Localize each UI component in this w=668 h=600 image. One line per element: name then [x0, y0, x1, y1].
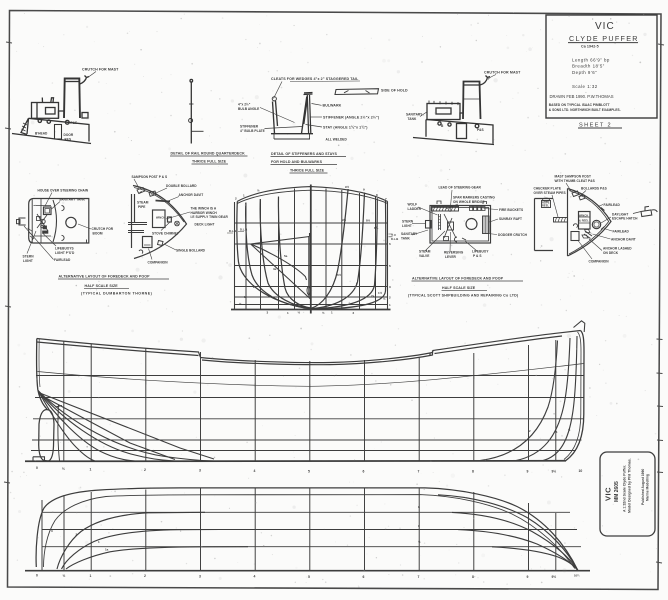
svg-text:WINCH: WINCH	[156, 216, 165, 220]
svg-text:COMPANION: COMPANION	[589, 260, 610, 264]
svg-text:FAIRLEAD: FAIRLEAD	[613, 230, 630, 234]
svg-text:DODGER CRUTCH: DODGER CRUTCH	[498, 233, 528, 237]
svg-text:& REEL: & REEL	[579, 219, 589, 223]
svg-text:& SONS LTD. NORTHWICH BUILT EX: & SONS LTD. NORTHWICH BUILT EXAMPLES.	[549, 108, 621, 112]
svg-text:1: 1	[90, 574, 92, 578]
svg-text:D.L.B: D.L.B	[391, 237, 398, 241]
svg-text:FAIRLEAD: FAIRLEAD	[604, 203, 621, 207]
svg-text:Breadth 18'5”: Breadth 18'5”	[572, 64, 605, 69]
svg-text:LIGHT: LIGHT	[402, 224, 412, 228]
svg-text:HALF SCALE SIZE: HALF SCALE SIZE	[85, 284, 119, 288]
svg-text:SIDE OF HOLD: SIDE OF HOLD	[381, 89, 408, 93]
svg-text:5: 5	[308, 575, 310, 579]
svg-text:SINGLE BOLLARD: SINGLE BOLLARD	[176, 249, 206, 253]
svg-text:8: 8	[472, 575, 474, 579]
svg-text:STAY (ANGLE 1¾”x 1¾”): STAY (ANGLE 1¾”x 1¾”)	[323, 126, 368, 130]
svg-text:THRICE FULL SIZE: THRICE FULL SIZE	[192, 160, 227, 164]
svg-text:7: 7	[418, 470, 420, 474]
svg-text:½: ½	[62, 467, 65, 471]
svg-text:3: 3	[199, 574, 201, 578]
svg-text:0: 0	[36, 574, 38, 578]
svg-text:PIPE: PIPE	[138, 205, 145, 209]
svg-text:TANK: TANK	[401, 236, 410, 240]
svg-text:ALTERNATIVE LAYOUT OF FOREDECK: ALTERNATIVE LAYOUT OF FOREDECK AND POOP	[59, 275, 151, 279]
svg-text:P&S: P&S	[71, 121, 78, 125]
svg-text:6: 6	[363, 470, 365, 474]
svg-text:SANITARY TANK: SANITARY TANK	[59, 198, 86, 202]
svg-text:Model Designed by Phil Thomas.: Model Designed by Phil Thomas.	[628, 458, 632, 513]
svg-text:DOOR: DOOR	[64, 133, 74, 137]
svg-text:ANCHOR DAVIT: ANCHOR DAVIT	[179, 193, 204, 197]
svg-text:DETAIL OF RAIL ROUND QUARTERDE: DETAIL OF RAIL ROUND QUARTERDECK	[171, 152, 246, 156]
svg-text:D.L.B: D.L.B	[240, 228, 247, 232]
svg-text:1: 1	[90, 468, 92, 472]
svg-text:BASED ON TYPICAL ISAAC PIMBLOT: BASED ON TYPICAL ISAAC PIMBLOTT	[549, 103, 610, 107]
svg-text:4: 4	[254, 575, 256, 579]
svg-text:LIGHT: LIGHT	[23, 259, 33, 263]
svg-text:FAIRLEAD: FAIRLEAD	[54, 258, 71, 262]
svg-text:STOVE CHIMNEY: STOVE CHIMNEY	[152, 232, 180, 236]
svg-text:LEAD OF STEERING GEAR: LEAD OF STEERING GEAR	[439, 186, 482, 190]
svg-text:9½: 9½	[345, 185, 350, 189]
svg-text:7: 7	[418, 575, 420, 579]
svg-text:A 1:32nd Scale Clyde Puffer.: A 1:32nd Scale Clyde Puffer.	[623, 465, 627, 512]
svg-text:DETAIL OF STIFFENERS AND STAYS: DETAIL OF STIFFENERS AND STAYS	[271, 152, 338, 156]
svg-text:DOUBLE BOLLARD: DOUBLE BOLLARD	[166, 184, 197, 188]
svg-text:CRUTCH FOR MAST: CRUTCH FOR MAST	[82, 68, 119, 72]
svg-text:1a: 1a	[105, 547, 109, 551]
svg-text:ON DECK: ON DECK	[603, 251, 619, 255]
svg-text:Depth 9'6”: Depth 9'6”	[572, 70, 597, 75]
svg-text:6: 6	[363, 575, 365, 579]
svg-text:B'HEAD: B'HEAD	[35, 132, 48, 136]
svg-text:VIC: VIC	[604, 487, 613, 501]
svg-text:THRICE FULL SIZE: THRICE FULL SIZE	[290, 169, 325, 173]
svg-text:BULWARK: BULWARK	[323, 104, 342, 108]
svg-text:WITH THUMB CLEAT P&S: WITH THUMB CLEAT P&S	[555, 179, 595, 183]
svg-text:P & S: P & S	[473, 254, 482, 258]
svg-text:2: 2	[144, 468, 146, 472]
svg-text:COMPANION: COMPANION	[148, 261, 169, 265]
svg-text:OVER STEAM PIPES: OVER STEAM PIPES	[534, 191, 566, 195]
svg-text:8½: 8½	[366, 219, 371, 223]
svg-text:REEL: REEL	[542, 203, 549, 207]
svg-text:(TYPICAL DUMBARTON THORNE): (TYPICAL DUMBARTON THORNE)	[81, 292, 153, 296]
svg-text:I.E SUPPLY TWIN GEAR: I.E SUPPLY TWIN GEAR	[191, 215, 229, 219]
svg-text:CRUTCH FOR MAST: CRUTCH FOR MAST	[484, 71, 521, 75]
svg-text:Length 66'9” bp: Length 66'9” bp	[572, 58, 610, 63]
svg-text:ANCHOR DAVIT: ANCHOR DAVIT	[611, 238, 636, 242]
svg-text:HOUSE OVER STEERING CHAIN: HOUSE OVER STEERING CHAIN	[38, 189, 89, 193]
svg-text:8¾: 8¾	[374, 226, 379, 230]
svg-text:(TYPICAL SCOTT SHIPBUILDING AN: (TYPICAL SCOTT SHIPBUILDING AND REPAIRIN…	[408, 294, 519, 298]
svg-text:BOLLARDS P&S: BOLLARDS P&S	[581, 187, 607, 191]
svg-text:3a: 3a	[273, 267, 277, 271]
svg-text:FOR HOLD AND BULWARKS: FOR HOLD AND BULWARKS	[271, 160, 323, 164]
svg-text:2: 2	[144, 574, 146, 578]
svg-text:Published August 1990: Published August 1990	[641, 469, 645, 505]
svg-text:ALTERNATIVE LAYOUT OF FOREDECK: ALTERNATIVE LAYOUT OF FOREDECK AND POOP	[412, 277, 504, 281]
svg-text:ESCAPE HATCH: ESCAPE HATCH	[612, 217, 638, 221]
svg-text:FIRE BUCKETS: FIRE BUCKETS	[499, 208, 523, 212]
svg-text:5: 5	[308, 470, 310, 474]
svg-text:VALVE: VALVE	[419, 254, 429, 258]
svg-text:4” BULB PLATE: 4” BULB PLATE	[240, 129, 265, 133]
svg-text:BULB ANGLE: BULB ANGLE	[238, 107, 259, 111]
svg-text:SAMPSON POST P & S: SAMPSON POST P & S	[132, 175, 168, 179]
svg-text:MM 2605: MM 2605	[614, 481, 620, 502]
svg-text:D.L.B: D.L.B	[229, 229, 236, 233]
svg-text:b: b	[418, 505, 420, 509]
svg-text:9½: 9½	[342, 218, 347, 222]
svg-text:ALL WELDED: ALL WELDED	[326, 138, 348, 142]
svg-text:STIFFENER (ANGLE 2½”x 2½”): STIFFENER (ANGLE 2½”x 2½”)	[323, 116, 380, 120]
svg-text:VIC: VIC	[595, 21, 615, 32]
svg-text:½: ½	[63, 574, 66, 578]
svg-text:9½: 9½	[552, 470, 557, 474]
svg-text:10: 10	[579, 469, 583, 473]
svg-text:6½: 6½	[337, 273, 342, 277]
svg-text:Ca 1942-5: Ca 1942-5	[581, 45, 599, 49]
svg-text:7a: 7a	[371, 294, 375, 298]
svg-text:STERN: STERN	[23, 255, 35, 259]
svg-text:DRAWN FEB 1990. P.W.THOMAS: DRAWN FEB 1990. P.W.THOMAS	[550, 94, 614, 99]
svg-text:3: 3	[199, 469, 201, 473]
svg-text:HALF SCALE SIZE: HALF SCALE SIZE	[442, 286, 476, 290]
svg-text:CRUTCH FOR: CRUTCH FOR	[92, 227, 114, 231]
svg-text:5a: 5a	[284, 254, 288, 258]
svg-text:Marine Modelling: Marine Modelling	[646, 474, 650, 501]
svg-text:DECK LIGHT: DECK LIGHT	[195, 223, 215, 227]
svg-text:CLYDE PUFFER: CLYDE PUFFER	[569, 34, 639, 43]
svg-text:1½: 1½	[378, 291, 383, 295]
svg-text:WINCH: WINCH	[579, 214, 588, 218]
svg-text:0: 0	[36, 466, 38, 470]
svg-text:LIGHT P’S’D: LIGHT P’S’D	[55, 251, 75, 255]
svg-text:P&S: P&S	[477, 128, 484, 132]
svg-text:8: 8	[472, 470, 474, 474]
svg-text:ON WHOLE BRIDGE: ON WHOLE BRIDGE	[453, 200, 485, 204]
svg-text:P&S: P&S	[65, 138, 72, 142]
svg-text:BOOM: BOOM	[93, 232, 103, 236]
svg-text:SUNRAY RAFT: SUNRAY RAFT	[499, 217, 522, 221]
svg-text:9½: 9½	[552, 575, 557, 579]
svg-text:Scale 1:32: Scale 1:32	[572, 84, 598, 89]
svg-text:LEVER: LEVER	[445, 255, 457, 259]
svg-text:10¼: 10¼	[574, 574, 580, 578]
svg-text:TANK: TANK	[408, 117, 417, 121]
svg-text:9: 9	[527, 575, 529, 579]
svg-text:9: 9	[527, 470, 529, 474]
svg-text:4: 4	[254, 469, 256, 473]
svg-text:CLEATS FOR WEDGES 4”x 2” STAGG: CLEATS FOR WEDGES 4”x 2” STAGGERED TAIL	[271, 77, 359, 81]
